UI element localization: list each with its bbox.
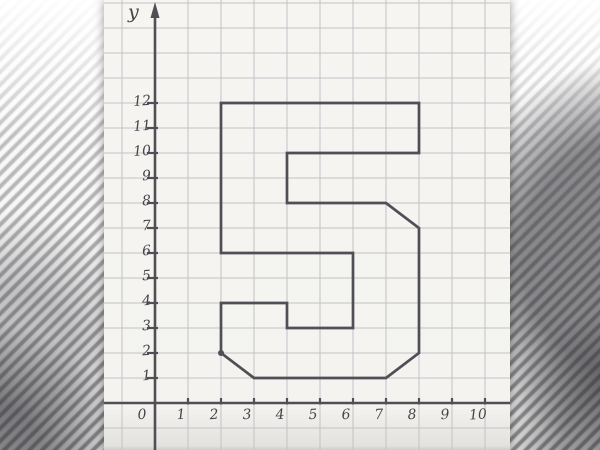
graph-paper: y 123456789101234567891011120 (104, 0, 510, 450)
marked-point (218, 350, 224, 356)
coordinate-plane-svg (104, 0, 510, 450)
y-axis-arrowhead-icon (151, 2, 160, 18)
slide: y 123456789101234567891011120 (0, 0, 600, 450)
